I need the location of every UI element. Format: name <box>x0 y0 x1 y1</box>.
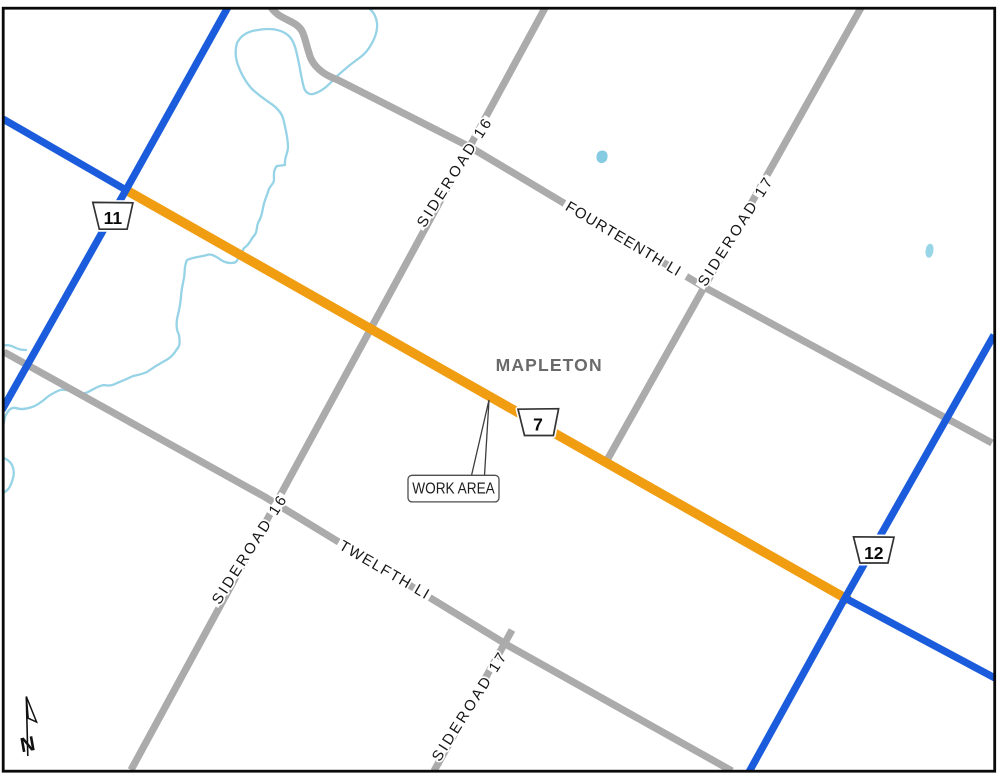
svg-text:WORK AREA: WORK AREA <box>412 480 495 497</box>
svg-text:12: 12 <box>864 543 884 563</box>
svg-text:11: 11 <box>104 208 123 228</box>
svg-text:MAPLETON: MAPLETON <box>496 355 602 375</box>
svg-text:7: 7 <box>533 414 543 434</box>
